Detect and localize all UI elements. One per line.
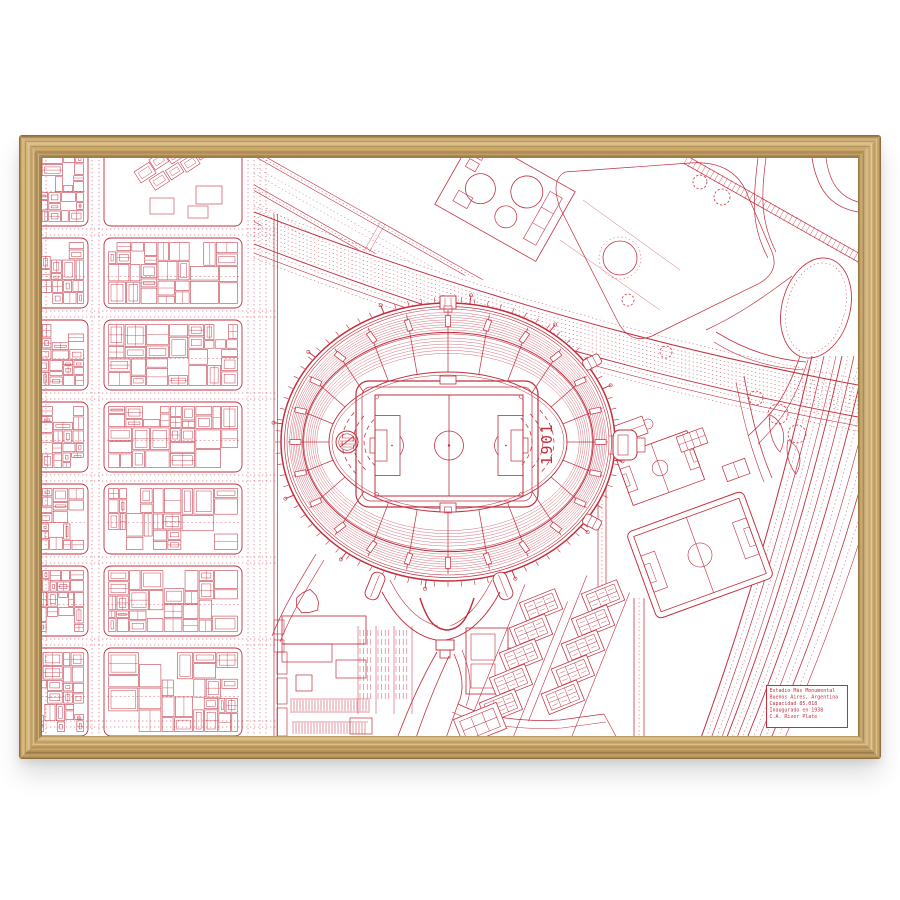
frame-strip-bottom <box>20 736 880 758</box>
print-area: 1901 Estadio Más Monumental Buenos Aires… <box>42 158 858 736</box>
stadium-map-art: 1901 <box>42 158 858 736</box>
plate-line-city: Buenos Aires, Argentina <box>769 694 848 700</box>
frame-strip-right <box>858 136 880 758</box>
info-plate-text: Estadio Más Monumental Buenos Aires, Arg… <box>767 686 848 720</box>
plate-line-club: C.A. River Plate <box>769 714 848 720</box>
wood-frame: 1901 Estadio Más Monumental Buenos Aires… <box>20 136 880 758</box>
frame-strip-top <box>20 136 880 158</box>
info-plate: Estadio Más Monumental Buenos Aires, Arg… <box>766 685 848 728</box>
poster-photo: 1901 Estadio Más Monumental Buenos Aires… <box>0 0 900 900</box>
frame-strip-left <box>20 136 42 758</box>
year-mark: 1901 <box>538 423 556 465</box>
